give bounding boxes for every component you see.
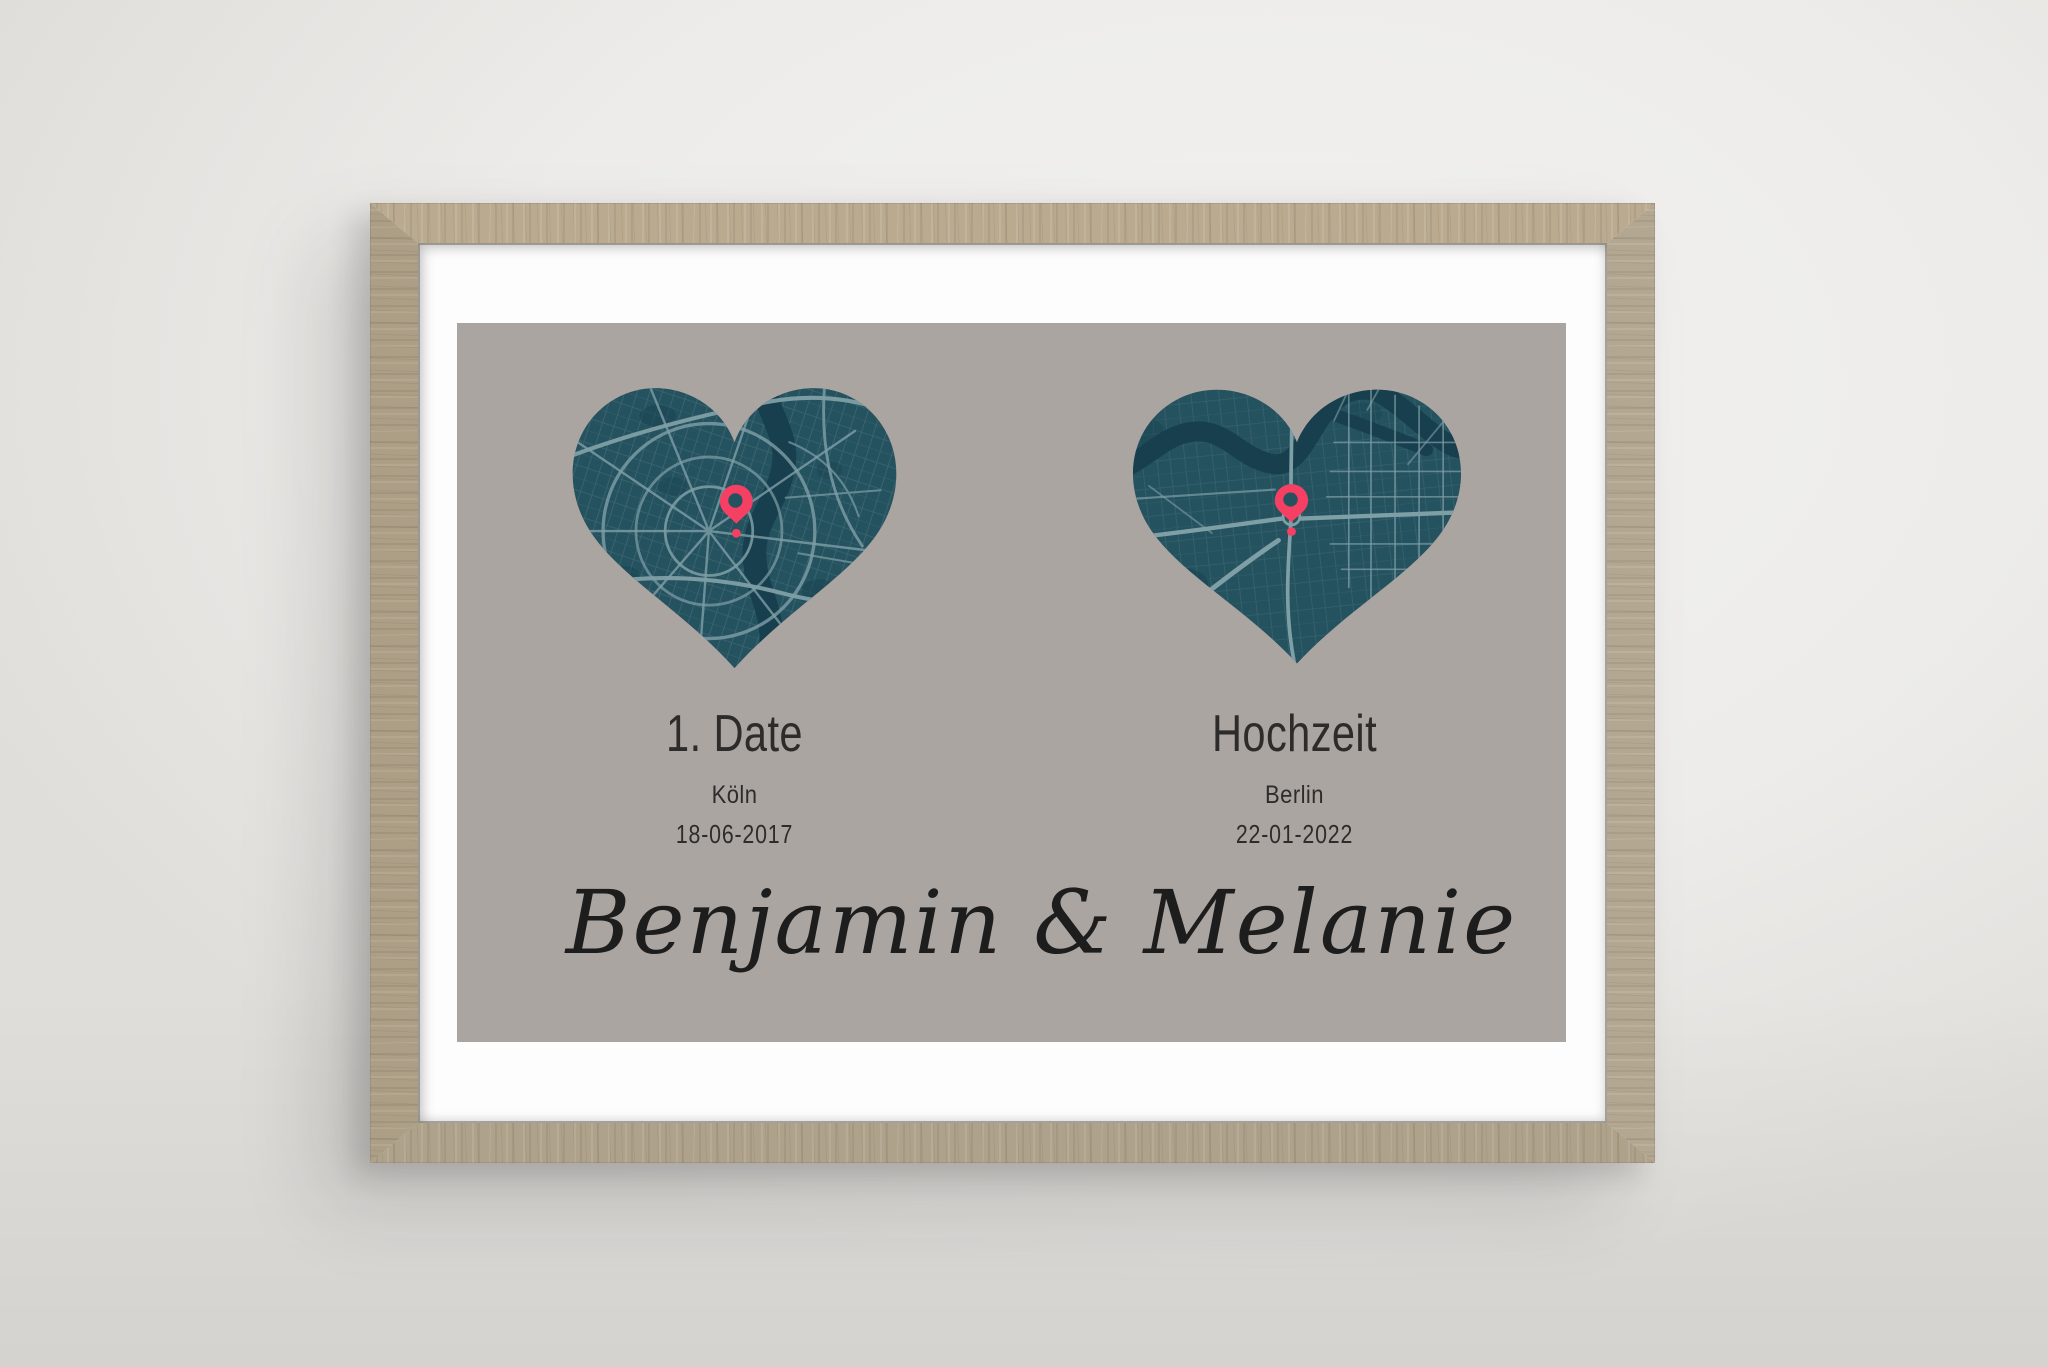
poster: 1. Date Köln 18-06-2017 Hochzeit Berlin … (457, 323, 1566, 1042)
frame-right-bar (1607, 203, 1655, 1163)
frame-left-bar (370, 203, 418, 1163)
picture-frame: 1. Date Köln 18-06-2017 Hochzeit Berlin … (370, 203, 1655, 1163)
event-date: 18-06-2017 (552, 819, 917, 850)
wall: 1. Date Köln 18-06-2017 Hochzeit Berlin … (0, 0, 2048, 1367)
frame-top-bar (370, 203, 1655, 243)
event-title: Hochzeit (1117, 708, 1473, 760)
map-heart-left (552, 368, 917, 683)
frame-bottom-bar (370, 1123, 1655, 1163)
event-date: 22-01-2022 (1112, 819, 1477, 850)
event-city: Köln (539, 781, 931, 810)
event-city: Berlin (1099, 781, 1491, 810)
panel-wedding: Hochzeit Berlin 22-01-2022 (1072, 708, 1517, 850)
panel-first-date: 1. Date Köln 18-06-2017 (512, 708, 957, 850)
map-heart-right (1112, 370, 1482, 678)
mat-board: 1. Date Köln 18-06-2017 Hochzeit Berlin … (418, 243, 1607, 1123)
couple-names: Benjamin & Melanie (487, 871, 1596, 974)
event-title: 1. Date (557, 708, 913, 760)
